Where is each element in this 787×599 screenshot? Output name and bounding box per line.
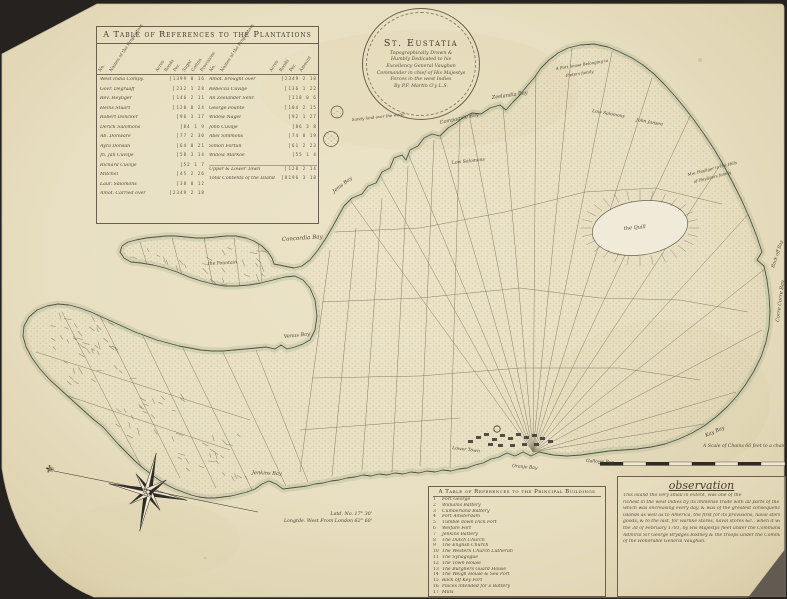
proprietor-name: Rev. Heyliger — [100, 96, 173, 101]
bay-label: Jenkins Bay — [251, 470, 282, 477]
table-row: Rebecca Cuvilje136 1 22 — [209, 86, 317, 96]
scale-bar — [598, 462, 786, 466]
table-row: Rev. Heyliger146 2 11 — [100, 95, 205, 105]
table-row: Amot. Carried over2349 2 18 — [100, 190, 205, 200]
acreage-values: 2349 2 18 — [170, 190, 205, 195]
dedication-line: Forces in the west Indies — [390, 77, 451, 84]
column-header: Per. — [289, 63, 298, 73]
building-name: Mills — [442, 590, 453, 595]
column-header: Acres — [269, 60, 280, 73]
buildings-reference-table: A Table of References to the Principal B… — [428, 486, 606, 597]
item-number: 13 — [433, 567, 442, 572]
table-summary-row: Total Contents of the Island8196 3 18 — [209, 175, 317, 185]
table-row: George Founte104 2 15 — [209, 105, 317, 115]
plantation-table-column-headers: No. Names of the Proprietors Acres Roods… — [97, 44, 318, 75]
item-number: 8 — [433, 538, 442, 543]
proprietor-name: West India Compy. — [100, 77, 170, 82]
proprietor-name: Simon Fortun — [209, 144, 289, 149]
proprietor-name: Ayra Donsan — [100, 144, 177, 149]
acreage-values: 232 1 28 — [173, 86, 205, 91]
longitude-value: Longtde. West From London 62° 60' — [232, 519, 372, 526]
table-row: Abel Simmons74 0 19 — [209, 133, 317, 143]
building-name: The Dutch Church — [442, 538, 485, 543]
observation-line: This island tho very small in extent, wa… — [623, 493, 780, 500]
building-name: The Western Church Lutheran — [442, 549, 513, 554]
dedication-line: Commander in chief of His Majestys — [377, 71, 465, 78]
plantation-reference-table: A Table of References to the Plantations… — [96, 26, 319, 224]
building-name: Fort Amsterdam — [442, 514, 480, 519]
summary-label: Total Contents of the Island — [209, 176, 282, 181]
building-name: Jenkins Battery — [442, 532, 478, 537]
title-cartouche: St. Eustatia Topographically Drawn & Hum… — [362, 8, 480, 120]
proprietor-name: Mitchel — [100, 172, 177, 177]
dedication-line: Humbly Dedicated to his — [391, 57, 451, 64]
scale-bar-label: A Scale of Chains 66 feet to a chain — [640, 444, 786, 449]
acreage-values: 55 1 4 — [293, 152, 317, 157]
acreage-values: 45 2 26 — [177, 171, 205, 176]
acreage-values: 86 3 8 — [293, 124, 317, 129]
acreage-values: 2349 2 18 — [282, 76, 317, 81]
table-row: Derick Salomons84 1 9 — [100, 124, 205, 134]
item-number: 5 — [433, 520, 442, 525]
building-name: Williams Battery — [442, 503, 481, 508]
proprietor-name: Robert Doncker — [100, 115, 177, 120]
table-row: Widow Markoe55 1 4 — [209, 152, 317, 162]
acreage-values: 96 3 17 — [177, 114, 205, 119]
item-number: 3 — [433, 509, 442, 514]
acreage-values: 104 2 15 — [285, 105, 317, 110]
table-row: West India Compy.1399 0 16 — [100, 76, 205, 86]
observation-title: observation — [623, 479, 780, 493]
table-row: Robert Doncker96 3 17 — [100, 114, 205, 124]
table-row: Widow Nagel92 1 27 — [209, 114, 317, 124]
proprietor-name: Laur. Salomons — [100, 182, 177, 187]
item-number: 6 — [433, 526, 442, 531]
proprietor-name: Widow Nagel — [209, 115, 289, 120]
item-number: 9 — [433, 543, 442, 548]
map-sheet-photo: ⚜ Zeelandia Bay Compagnie Bay Jems Bay C… — [0, 0, 787, 599]
item-number: 16 — [433, 584, 442, 589]
item-number: 4 — [433, 514, 442, 519]
author-credit: By P.F. Martin G'y L.S. — [394, 84, 448, 91]
acreage-values: 1399 0 16 — [170, 76, 205, 81]
plantation-table-left-group: West India Compy.1399 0 16 Govr. Degraaf… — [100, 76, 205, 200]
acreage-values: 92 1 27 — [289, 114, 317, 119]
proprietor-name: Heins Stuart — [100, 106, 173, 111]
table-row: An Zeelander Senr.118 0 6 — [209, 95, 317, 105]
list-item: 17Mills — [433, 590, 601, 596]
plantation-table-right-group: Amot. brought over2349 2 18 Rebecca Cuvi… — [209, 76, 317, 185]
proprietor-name: Ab. Donware — [100, 134, 177, 139]
building-name: The Town House — [442, 561, 481, 566]
building-name: Tumble down Dick Fort — [442, 520, 497, 525]
proprietor-name: John Cuvilje — [209, 125, 293, 130]
item-number: 10 — [433, 549, 442, 554]
acreage-values: 64 0 21 — [177, 143, 205, 148]
buildings-table-title: A Table of References to the Principal B… — [433, 488, 601, 497]
acreage-values: 74 0 19 — [289, 133, 317, 138]
proprietor-name: Abel Simmons — [209, 134, 289, 139]
item-number: 7 — [433, 532, 442, 537]
acreage-values: 38 0 12 — [177, 181, 205, 186]
acreage-values: 128 2 14 — [285, 166, 317, 171]
acreage-values: 52 1 7 — [181, 162, 205, 167]
map-title: St. Eustatia — [384, 38, 458, 49]
acreage-values: 58 3 14 — [177, 152, 205, 157]
acreage-values: 118 0 6 — [289, 95, 317, 100]
proprietor-name: Richard Cuvilje — [100, 163, 181, 168]
observation-line: of the Honorable General Vaughan. — [623, 539, 780, 546]
table-row: Jn. Jan Cuvilje58 3 14 — [100, 152, 205, 162]
table-row: John Cuvilje86 3 8 — [209, 124, 317, 134]
table-row: Simon Fortun61 2 23 — [209, 143, 317, 153]
column-header: No. — [98, 64, 107, 73]
observation-line: richest in the west indies by its immens… — [623, 500, 780, 507]
item-number: 12 — [433, 561, 442, 566]
item-number: 11 — [433, 555, 442, 560]
acreage-values: 77 2 30 — [177, 133, 205, 138]
item-number: 17 — [433, 590, 442, 595]
building-name: Places intended for a Battery — [442, 584, 510, 589]
item-number: 2 — [433, 503, 442, 508]
building-name: The Synagogue — [442, 555, 478, 560]
item-number: 1 — [433, 497, 442, 502]
column-header: Amount — [299, 56, 313, 73]
proprietor-name: An Zeelander Senr. — [209, 96, 289, 101]
dedication-line: Topographically Drawn & — [390, 51, 452, 58]
summary-label: Upper & Lower Town — [209, 167, 285, 172]
table-row: Richard Cuvilje52 1 7 — [100, 162, 205, 172]
proprietor-name: George Founte — [209, 106, 285, 111]
proprietor-name: Amot. Carried over — [100, 191, 170, 196]
acreage-values: 8196 3 18 — [282, 175, 317, 180]
observation-line: Admiral Sir George Brydges Rodney & the … — [623, 533, 780, 540]
proprietor-name: Amot. brought over — [209, 77, 282, 82]
table-summary-row: Upper & Lower Town128 2 14 — [209, 165, 317, 176]
column-header: Per. — [173, 63, 182, 73]
table-row: Heins Stuart128 0 24 — [100, 105, 205, 115]
item-number: 14 — [433, 572, 442, 577]
acreage-values: 128 0 24 — [173, 105, 205, 110]
building-name: Back off Key Fort — [442, 578, 482, 583]
building-name: Fort George — [442, 497, 470, 502]
table-row: Ayra Donsan64 0 21 — [100, 143, 205, 153]
building-name: The Burghers Guard House — [442, 567, 506, 572]
proprietor-name: Rebecca Cuvilje — [209, 87, 285, 92]
building-name: The Weigh House & Sea Port — [442, 572, 510, 577]
building-name: Cumberland Battery — [442, 509, 490, 514]
table-row: Laur. Salomons38 0 12 — [100, 181, 205, 191]
table-row: Ab. Donware77 2 30 — [100, 133, 205, 143]
building-name: Welfare Fort — [442, 526, 471, 531]
coordinates-note: Latd. No. 17° 30' Longtde. West From Lon… — [232, 512, 372, 525]
proprietor-name: Jn. Jan Cuvilje — [100, 153, 177, 158]
observation-line: which was encreasing every day, & was of… — [623, 506, 780, 513]
table-row: Mitchel45 2 26 — [100, 171, 205, 181]
acreage-values: 84 1 9 — [181, 124, 205, 129]
column-header: No. — [209, 64, 218, 73]
observation-line: islands as well as to America, the first… — [623, 513, 780, 520]
acreage-values: 136 1 22 — [285, 86, 317, 91]
dedication-line: Excellency General Vaughan — [386, 64, 456, 71]
observation-line: goods, & to the last, for warlike stores… — [623, 519, 780, 526]
observation-note: observation This island tho very small i… — [617, 476, 786, 597]
building-name: The English Church — [442, 543, 488, 548]
table-row: Amot. brought over2349 2 18 — [209, 76, 317, 86]
proprietor-name: Widow Markoe — [209, 153, 293, 158]
proprietor-name: Govr. Degraaff — [100, 87, 173, 92]
table-row: Govr. Degraaff232 1 28 — [100, 86, 205, 96]
acreage-values: 146 2 11 — [173, 95, 205, 100]
observation-line: the 3d of February 1781, by His Majestys… — [623, 526, 780, 533]
acreage-values: 61 2 23 — [289, 143, 317, 148]
proprietor-name: Derick Salomons — [100, 125, 181, 130]
item-number: 15 — [433, 578, 442, 583]
